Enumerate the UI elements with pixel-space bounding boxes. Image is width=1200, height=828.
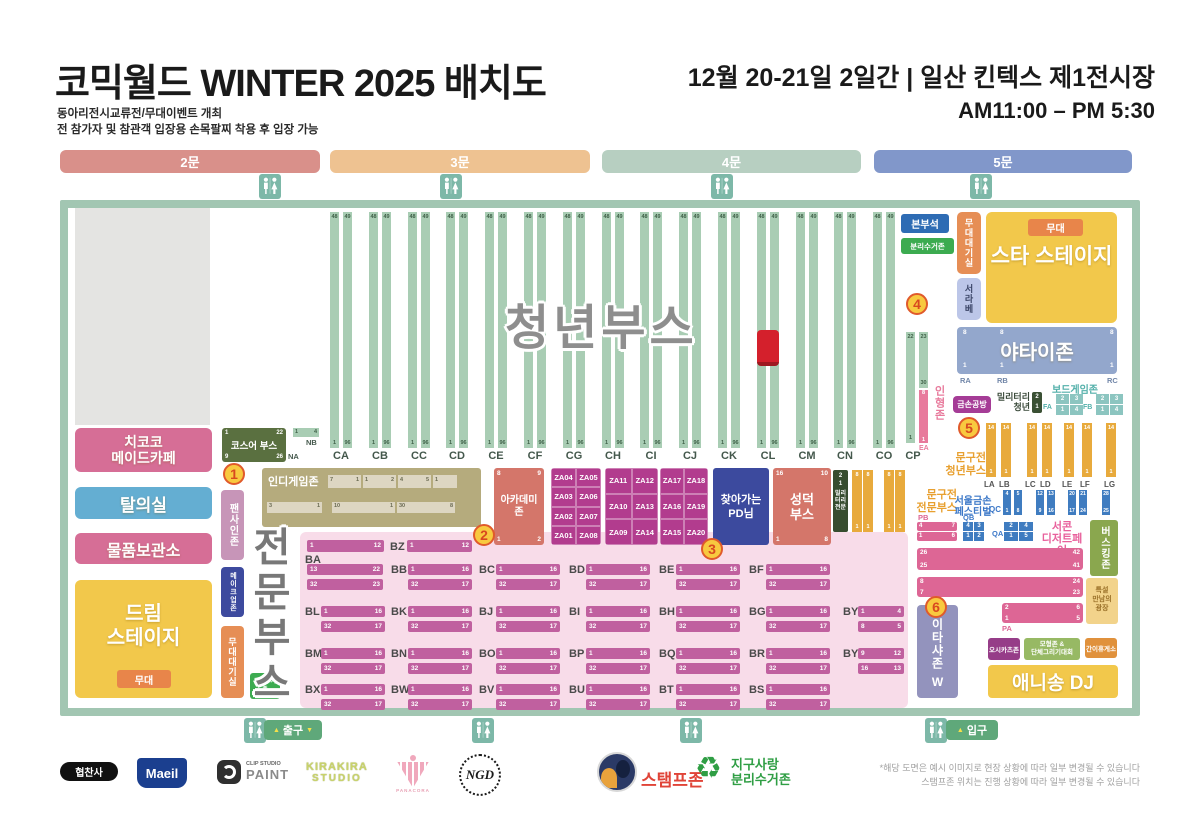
pro-slat: 116 [496,648,560,659]
recycle-icon: ♻ [695,752,722,786]
booth-cell: 5 [1019,532,1033,541]
page-title: 코믹월드 WINTER 2025 배치도 [55,52,546,107]
pro-slat: 116 [766,564,830,575]
pro-row-label-BY: BY [843,648,858,660]
itasha-zone: 이타샤존 W [917,605,958,698]
qb-label: QB [963,513,974,522]
restroom-icon [472,718,494,743]
qa-label: QA [992,529,1003,538]
youth-column-label-CH: CH [596,450,630,462]
pro-row-label-BF: BF [749,564,764,576]
indie-slat: 101 [332,502,395,513]
qc-column: 58 [1014,490,1022,515]
za-cell-ZA08: ZA08 [576,526,601,545]
stationery-youth-column-LB: 141 [1001,423,1011,477]
pro-slat: 116 [408,564,472,575]
pro-slat: 116 [321,684,385,695]
stationery-pro-column-KD: 81 [895,470,905,532]
board-cell: 3 [1070,394,1083,404]
youth-column-label-CF: CF [518,450,552,462]
pro-slat: 116 [408,648,472,659]
pro-slat: 3217 [766,663,830,674]
pro-row-label-BR: BR [749,648,765,660]
za-cell-ZA09: ZA09 [605,519,632,545]
dessert-row: 26422541 [917,548,1083,570]
entry-badge: ▲ 입구 [946,720,998,740]
hq-booth: 본부석 [901,214,949,233]
ngd-monogram-logo: NGD [459,754,501,796]
rest-area-booth: 간이휴게소 [1085,638,1117,658]
yatai-zone: 야타이존 [957,327,1117,374]
youth-column-label-CK: CK [712,450,746,462]
busking-zone: 버스킹존 [1090,520,1118,576]
youth-column-strip: 221 [906,332,915,443]
indie-slat: 308 [397,502,455,513]
stage-waiting-room-left: 무대대기실 [221,626,244,698]
yatai-top-number: 8 [963,329,967,336]
pro-slat: 3217 [408,699,472,710]
pb-slat: 16 [917,532,957,541]
pro-slat: 3217 [676,699,740,710]
stationery-youth-column-LG: 141 [1106,423,1116,477]
cosplay-booth: 코스어 부스 1 22 9 26 [222,428,286,462]
meeting-plaza: 특설 만남의 광장 [1086,578,1118,624]
za-cell-ZA02: ZA02 [551,507,576,526]
pro-slat: 3217 [496,579,560,590]
qb-booth: 4312 [963,522,985,542]
event-time: AM11:00 – PM 5:30 [958,98,1155,124]
pd-zone: 찾아가는PD님 [713,468,769,545]
youth-column-strip: 481 [873,212,882,448]
up-arrow-icon: ▲ [957,727,964,734]
pro-row-label-BZ: BZ [390,541,405,553]
board-cell: 4 [1070,405,1083,415]
pro-slat: 85 [858,621,904,632]
pro-row-label-BN: BN [391,648,407,660]
pro-slat: 3217 [321,621,385,632]
za-cell-ZA04: ZA04 [551,468,576,487]
stamp-mascot-logo [597,752,637,792]
indie-cell: 45 [398,475,431,488]
youth-column-label-CD: CD [440,450,474,462]
na-label: NA [288,452,299,461]
youth-column-label-CM: CM [790,450,824,462]
stationery-youth-label: 문구전청년부스 [930,452,986,478]
pro-slat: 1613 [858,663,904,674]
pro-row-label-BO: BO [479,648,496,660]
pro-slat: 3217 [586,699,650,710]
indie-cell: 71 [328,475,361,488]
pro-row-label-BB: BB [391,564,407,576]
pro-slat: 116 [676,648,740,659]
za-cell-ZA18: ZA18 [684,468,708,494]
pro-slat: 3217 [496,663,560,674]
subtitle-line1: 동아리전시교류전/무대이벤트 개최 [57,105,222,121]
indie-slat: 31 [267,502,322,513]
board-cell: 1 [1096,405,1109,415]
makeup-zone: 메이크업존 [221,567,244,617]
board-block-label-FB: FB [1083,404,1092,411]
restroom-icon [970,174,992,199]
board-cell: 2 [1096,394,1109,404]
pa-label: PA [1002,624,1012,633]
pro-slat: 3217 [321,699,385,710]
qc-column: 2124 [1079,490,1087,515]
pb-label: PB [918,513,928,522]
stationery-youth-column-LA: 141 [986,423,996,477]
notice-line1: *해당 도면은 예시 이미지로 현장 상황에 따라 일부 변경될 수 있습니다 [880,761,1140,774]
pro-row-label-BY: BY [843,606,858,618]
pb-slat: 47 [917,522,957,531]
stationery-pro-column-KB: 81 [863,470,873,532]
youth-column-strip: 4996 [459,212,468,448]
stationery-youth-label-LD: LD [1040,480,1051,489]
booth-cell: 2 [1004,522,1018,531]
za-cell-ZA14: ZA14 [632,519,659,545]
za-cell-ZA11: ZA11 [605,468,632,494]
dream-stage: 드림 스테이지 무대 [75,580,212,698]
pro-slat: 116 [586,684,650,695]
stationery-pro-column-KA: 81 [852,470,862,532]
youth-column-strip: 4996 [343,212,352,448]
pro-row-label-BD: BD [569,564,585,576]
fitting-room: 탈의실 [75,487,212,519]
marker-circle-6: 6 [925,596,947,618]
academy-zone: 아카데미존 8 9 1 2 [494,468,544,545]
dessert-row: 2615 [1002,603,1083,623]
za-cell-ZA10: ZA10 [605,494,632,520]
pro-row-label-BT: BT [659,684,674,696]
za-cell-ZA06: ZA06 [576,487,601,506]
seongdeok-booth: 성덕부스 16 10 1 8 [773,468,831,545]
board-cell: 3 [1110,394,1123,404]
clip-studio-icon [217,760,241,784]
military-youth-column: 2 1 [1032,392,1042,413]
youth-column-strip: 481 [369,212,378,448]
restroom-icon [259,174,281,199]
maeil-logo: Maeil [137,758,187,788]
pro-slat: 3217 [586,621,650,632]
pro-row-label-BM: BM [305,648,322,660]
pro-slat: 3217 [766,621,830,632]
pro-row-label-BI: BI [569,606,580,618]
restroom-icon [711,174,733,199]
pro-slat: 3217 [408,579,472,590]
qc-column: 1316 [1047,490,1055,515]
anisong-dj-zone: 애니송 DJ [988,665,1118,698]
pro-slat: 3217 [408,621,472,632]
youth-column-label-CC: CC [402,450,436,462]
yatai-bottom-number: 1 [1000,362,1004,369]
pro-slat: 3217 [496,621,560,632]
pro-row-label-BH: BH [659,606,675,618]
youth-column-strip: 481 [796,212,805,448]
qc-column: 2825 [1102,490,1110,515]
za-cell-ZA16: ZA16 [660,494,684,520]
youth-column-strip: 4996 [382,212,391,448]
military-pro-column: 2 1 밀리 터리 전문 [833,470,848,532]
up-arrow-icon: ▲ [273,727,280,734]
youth-column-strip: 4996 [809,212,818,448]
pro-slat: 112 [307,540,384,552]
stationery-youth-column-LF: 141 [1082,423,1092,477]
doll-zone-column: 8 1 [919,390,928,443]
panacora-logo: PANACORA [396,755,430,793]
event-date: 12월 20-21일 2일간 | 일산 킨텍스 제1전시장 [688,58,1155,94]
stationery-pro-column-KC: 81 [884,470,894,532]
qa-booth: 2415 [1004,522,1034,542]
maid-cafe: 치코코 메이드카페 [75,428,212,472]
pro-slat: 116 [586,648,650,659]
stationery-youth-column-LD: 141 [1042,423,1052,477]
qc-column: 41 [1003,490,1011,515]
exit-badge: ▲ 출구 ▼ [264,720,322,740]
za-cell-ZA03: ZA03 [551,487,576,506]
yatai-top-number: 8 [1110,329,1114,336]
stage-waiting-room-right: 무대대기실 [957,212,981,274]
pro-slat: 3217 [676,663,740,674]
youth-column-label-CB: CB [363,450,397,462]
marker-circle-4: 4 [906,293,928,315]
board-cell: 2 [1056,394,1069,404]
za-cell-ZA13: ZA13 [632,494,659,520]
pro-slat: 116 [496,606,560,617]
youth-column-label-CL: CL [751,450,785,462]
dream-stage-stage-badge: 무대 [117,670,171,688]
pro-row-label-BK: BK [391,606,407,618]
pro-slat: 116 [676,564,740,575]
youth-column-strip: 481 [408,212,417,448]
youth-column-label-CN: CN [828,450,862,462]
earth-love-label: 지구사랑 분리수거존 [731,757,791,787]
down-arrow-icon: ▼ [306,727,313,734]
youth-booth-title: 청년부스 [505,288,698,358]
pro-row-label-BX: BX [305,684,320,696]
pro-row-label-BE: BE [659,564,674,576]
board-block-label-FA: FA [1043,404,1052,411]
za-block: ZA11ZA12ZA10ZA13ZA09ZA14 [605,468,658,545]
yatai-column-label-RA: RA [960,376,971,385]
stationery-youth-label-LA: LA [984,480,995,489]
pro-slat: 14 [858,606,904,617]
pro-row-label-BC: BC [479,564,495,576]
pro-slat: 3217 [586,579,650,590]
pro-slat: 116 [496,564,560,575]
recycle-zone-top: 분리수거존 [901,238,954,254]
pro-slat: 116 [321,648,385,659]
yatai-column-label-RC: RC [1107,376,1118,385]
board-cell: 1 [1056,405,1069,415]
restroom-icon [680,718,702,743]
star-stage-label: 스타 스테이지 [986,244,1117,269]
youth-column-strip: 481 [834,212,843,448]
subtitle-line2: 전 참가자 및 참관객 입장용 손목팔찌 착용 후 입장 가능 [57,121,319,137]
za-cell-ZA07: ZA07 [576,507,601,526]
fan-sign-zone: 팬사인존 [221,490,244,560]
pro-slat: 3217 [586,663,650,674]
stationery-youth-label-LF: LF [1080,480,1090,489]
pro-slat: 116 [321,606,385,617]
seorabe-booth: 서라베 [957,278,981,320]
gate-2문: 2문 [60,150,320,173]
pro-row-label-BW: BW [391,684,409,696]
pro-row-label-BJ: BJ [479,606,493,618]
za-block: ZA17ZA18ZA16ZA19ZA15ZA20 [660,468,708,545]
star-stage: 무대 스타 스테이지 [986,212,1117,323]
gate-5문: 5문 [874,150,1132,173]
booth-cell: 4 [963,522,973,531]
model-zone-booth: 모형존 & 단체그리기대회 [1024,638,1080,660]
pro-slat: 3217 [321,663,385,674]
red-location-marker [757,330,779,366]
pro-slat: 116 [586,564,650,575]
za-cell-ZA17: ZA17 [660,468,684,494]
pro-slat: 3217 [676,621,740,632]
pro-booth-title: 전문부스 [248,526,296,706]
pro-slat: 3217 [408,663,472,674]
pb-booth: 4716 [917,522,957,542]
doll-zone-label: 인형존 [931,385,947,437]
youth-column-label-CI: CI [634,450,668,462]
booth-cell: 4 [1019,522,1033,531]
pro-slat: 116 [586,606,650,617]
yatai-top-number: 8 [1000,329,1004,336]
za-cell-ZA15: ZA15 [660,519,684,545]
youth-column-strip: 4996 [421,212,430,448]
clip-studio-logo: CLIP STUDIO PAINT [246,761,289,782]
notice-line2: 스탬프존 위치는 진행 상황에 따라 일부 변경될 수 있습니다 [921,775,1140,788]
restroom-icon [440,174,462,199]
marker-circle-5: 5 [958,417,980,439]
restroom-icon [925,718,947,743]
military-youth-label: 밀리터리청년 [986,392,1030,412]
geumson-gongbang-booth: 금손공방 [953,396,991,413]
pro-slat: 3217 [496,699,560,710]
youth-column-label-CJ: CJ [673,450,707,462]
doll-zone-column-label: EA [919,445,929,452]
stationery-youth-column-LE: 141 [1064,423,1074,477]
booth-cell: 3 [974,522,984,531]
youth-column-strip: 4996 [731,212,740,448]
youth-column-strip: 4996 [886,212,895,448]
youth-column-strip: 481 [446,212,455,448]
youth-column-strip: 4996 [847,212,856,448]
pro-slat: 3217 [766,699,830,710]
pro-slat: 116 [766,684,830,695]
restroom-icon [244,718,266,743]
nb-mini-column: 1 4 [293,428,319,437]
za-cell-ZA12: ZA12 [632,468,659,494]
za-cell-ZA01: ZA01 [551,526,576,545]
marker-circle-3: 3 [701,538,723,560]
gate-3문: 3문 [330,150,590,173]
pro-row-label-BQ: BQ [659,648,676,660]
yatai-bottom-number: 1 [1110,362,1114,369]
pro-slat: 116 [408,606,472,617]
pro-row-label-BL: BL [305,606,320,618]
booth-cell: 2 [974,532,984,541]
yatai-bottom-number: 1 [963,362,967,369]
youth-column-strip: 481 [718,212,727,448]
pro-slat: 116 [676,606,740,617]
pro-row-label-BU: BU [569,684,585,696]
youth-column-strip: 481 [485,212,494,448]
youth-column-strip: 481 [330,212,339,448]
youth-column-label-CO: CO [867,450,901,462]
qc-label: QC [989,505,1001,514]
storage-room: 물품보관소 [75,533,212,564]
kirakira-logo: KIRAKIRA STUDIO [306,761,368,784]
stationery-youth-label-LG: LG [1104,480,1115,489]
floor-plan-poster: 코믹월드 WINTER 2025 배치도 동아리전시교류전/무대이벤트 개최 전… [0,0,1200,828]
stationery-youth-label-LC: LC [1025,480,1036,489]
za-cell-ZA05: ZA05 [576,468,601,487]
indie-game-zone: 인디게임존 711245131101308 [262,468,481,527]
indie-cell: 1 [433,475,457,488]
marker-circle-1: 1 [223,463,245,485]
pro-slat: 116 [676,684,740,695]
booth-cell: 1 [963,532,973,541]
qc-column: 2017 [1068,490,1076,515]
pro-row-label-BV: BV [479,684,494,696]
indie-cell: 12 [363,475,396,488]
sponsor-label: 협찬사 [60,762,118,781]
pro-slat: 1322 [307,564,383,575]
pro-row-label-BS: BS [749,684,764,696]
pro-slat: 116 [766,648,830,659]
pro-slat: 912 [858,648,904,659]
star-stage-stage-badge: 무대 [1028,219,1083,236]
pro-booth-area [300,532,908,708]
pro-slat: 3217 [676,579,740,590]
oshikatsu-booth: 오시카츠존 [988,638,1020,660]
youth-column-strip: 2330 [919,332,928,388]
empty-area [75,208,210,425]
nb-label: NB [306,438,317,447]
pro-slat: 116 [496,684,560,695]
youth-column-label-CG: CG [557,450,591,462]
za-cell-ZA19: ZA19 [684,494,708,520]
pro-row-label-BP: BP [569,648,584,660]
youth-column-label-CA: CA [324,450,358,462]
board-cell: 4 [1110,405,1123,415]
youth-column-label-CE: CE [479,450,513,462]
pro-slat: 116 [408,684,472,695]
booth-cell: 1 [1004,532,1018,541]
stationery-youth-label-LB: LB [999,480,1010,489]
yatai-column-label-RB: RB [997,376,1008,385]
pro-slat: 112 [407,540,472,552]
qc-column: 129 [1036,490,1044,515]
pro-slat: 116 [766,606,830,617]
za-block: ZA04ZA05ZA03ZA06ZA02ZA07ZA01ZA08 [551,468,601,545]
stationery-youth-label-LE: LE [1062,480,1072,489]
gate-4문: 4문 [602,150,861,173]
dessert-row: 824723 [917,577,1083,597]
stationery-youth-column-LC: 141 [1027,423,1037,477]
pro-row-label-BG: BG [749,606,766,618]
pro-slat: 3217 [766,579,830,590]
pro-slat: 3223 [307,579,383,590]
marker-circle-2: 2 [473,524,495,546]
